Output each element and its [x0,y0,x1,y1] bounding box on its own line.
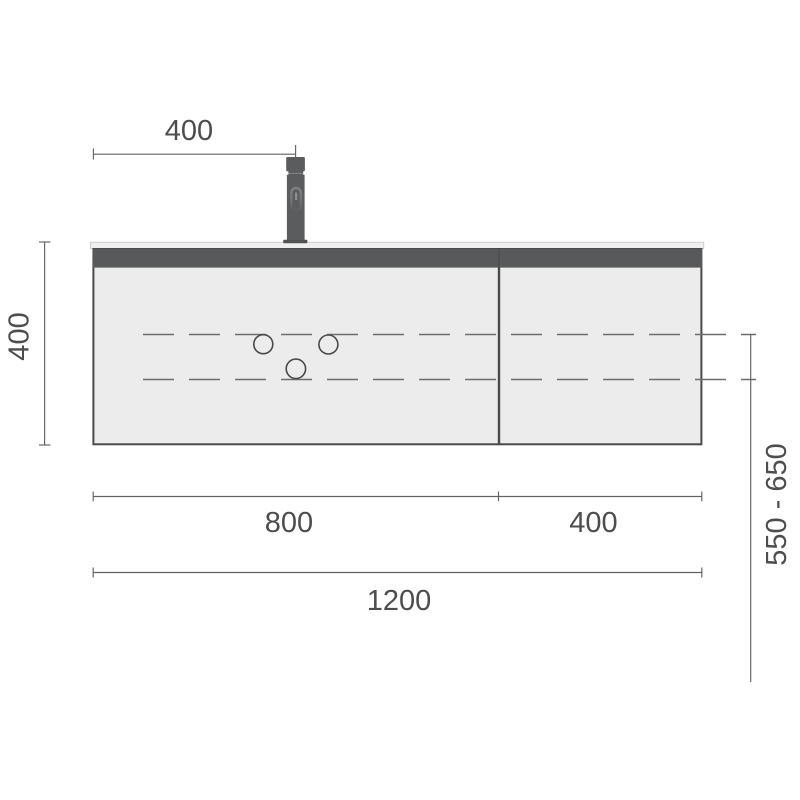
svg-text:550 - 650: 550 - 650 [761,443,793,566]
svg-text:400: 400 [569,507,617,539]
svg-text:400: 400 [4,312,36,360]
svg-text:1200: 1200 [367,585,432,617]
svg-text:800: 800 [265,507,313,539]
svg-text:400: 400 [165,115,213,147]
